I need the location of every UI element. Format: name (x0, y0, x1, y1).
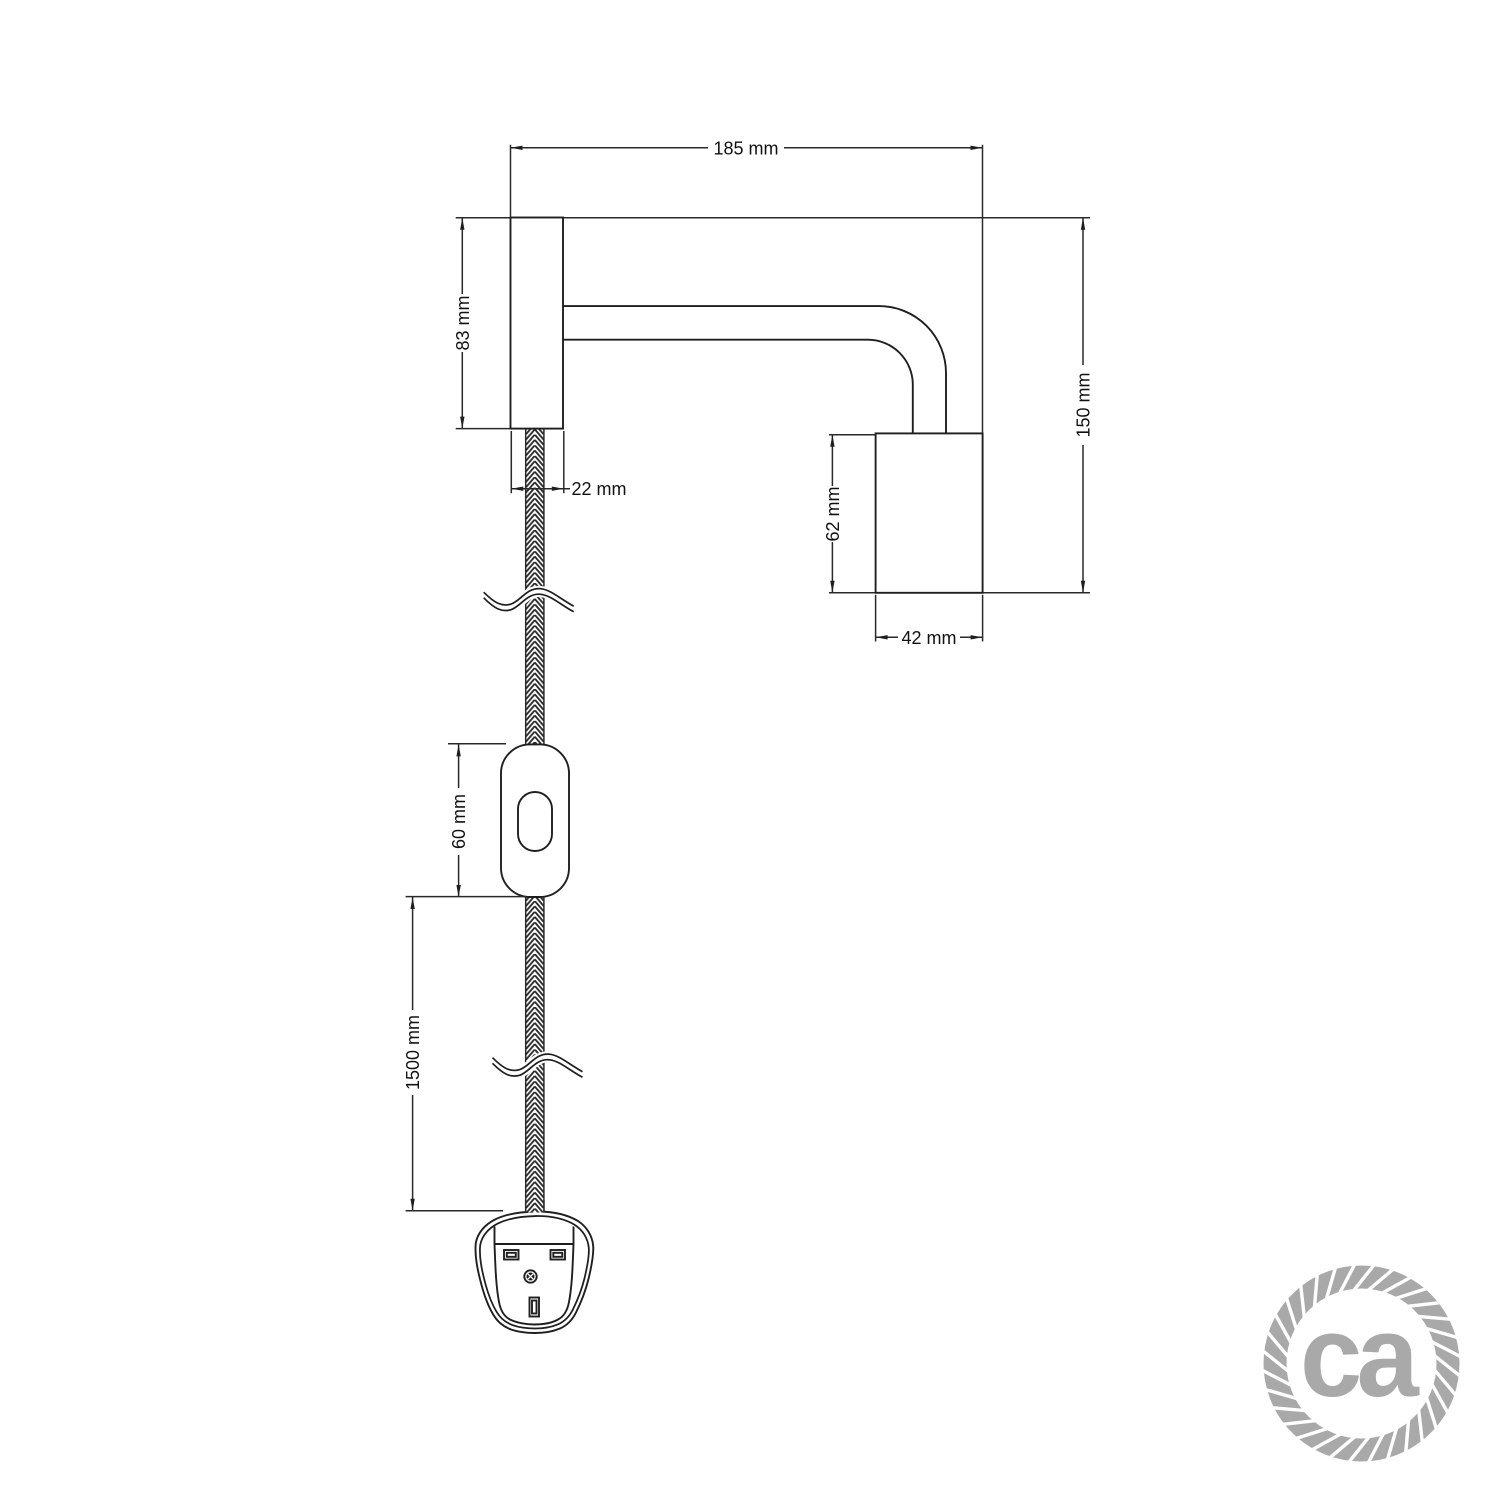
svg-text:22 mm: 22 mm (572, 479, 627, 499)
svg-text:1500 mm: 1500 mm (403, 1015, 423, 1090)
svg-text:42 mm: 42 mm (901, 628, 956, 648)
svg-text:150 mm: 150 mm (1074, 372, 1094, 437)
svg-text:83 mm: 83 mm (453, 295, 473, 350)
svg-text:185 mm: 185 mm (713, 138, 778, 158)
svg-text:ca: ca (1300, 1291, 1420, 1421)
svg-text:60 mm: 60 mm (449, 794, 469, 849)
svg-text:62 mm: 62 mm (823, 486, 843, 541)
